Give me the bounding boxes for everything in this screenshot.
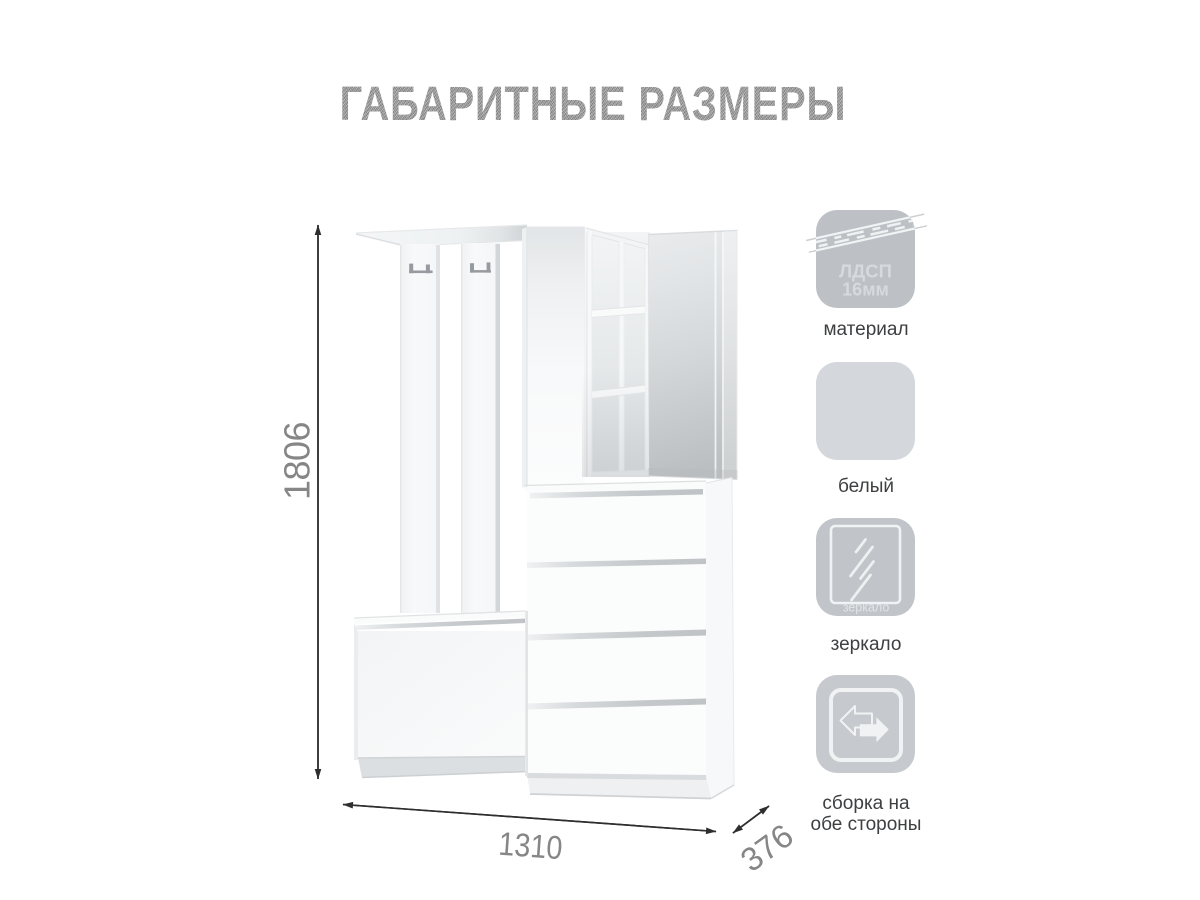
svg-text:ЛДСП: ЛДСП xyxy=(839,261,892,282)
svg-text:зеркало: зеркало xyxy=(843,601,890,615)
svg-text:16мм: 16мм xyxy=(842,280,889,300)
